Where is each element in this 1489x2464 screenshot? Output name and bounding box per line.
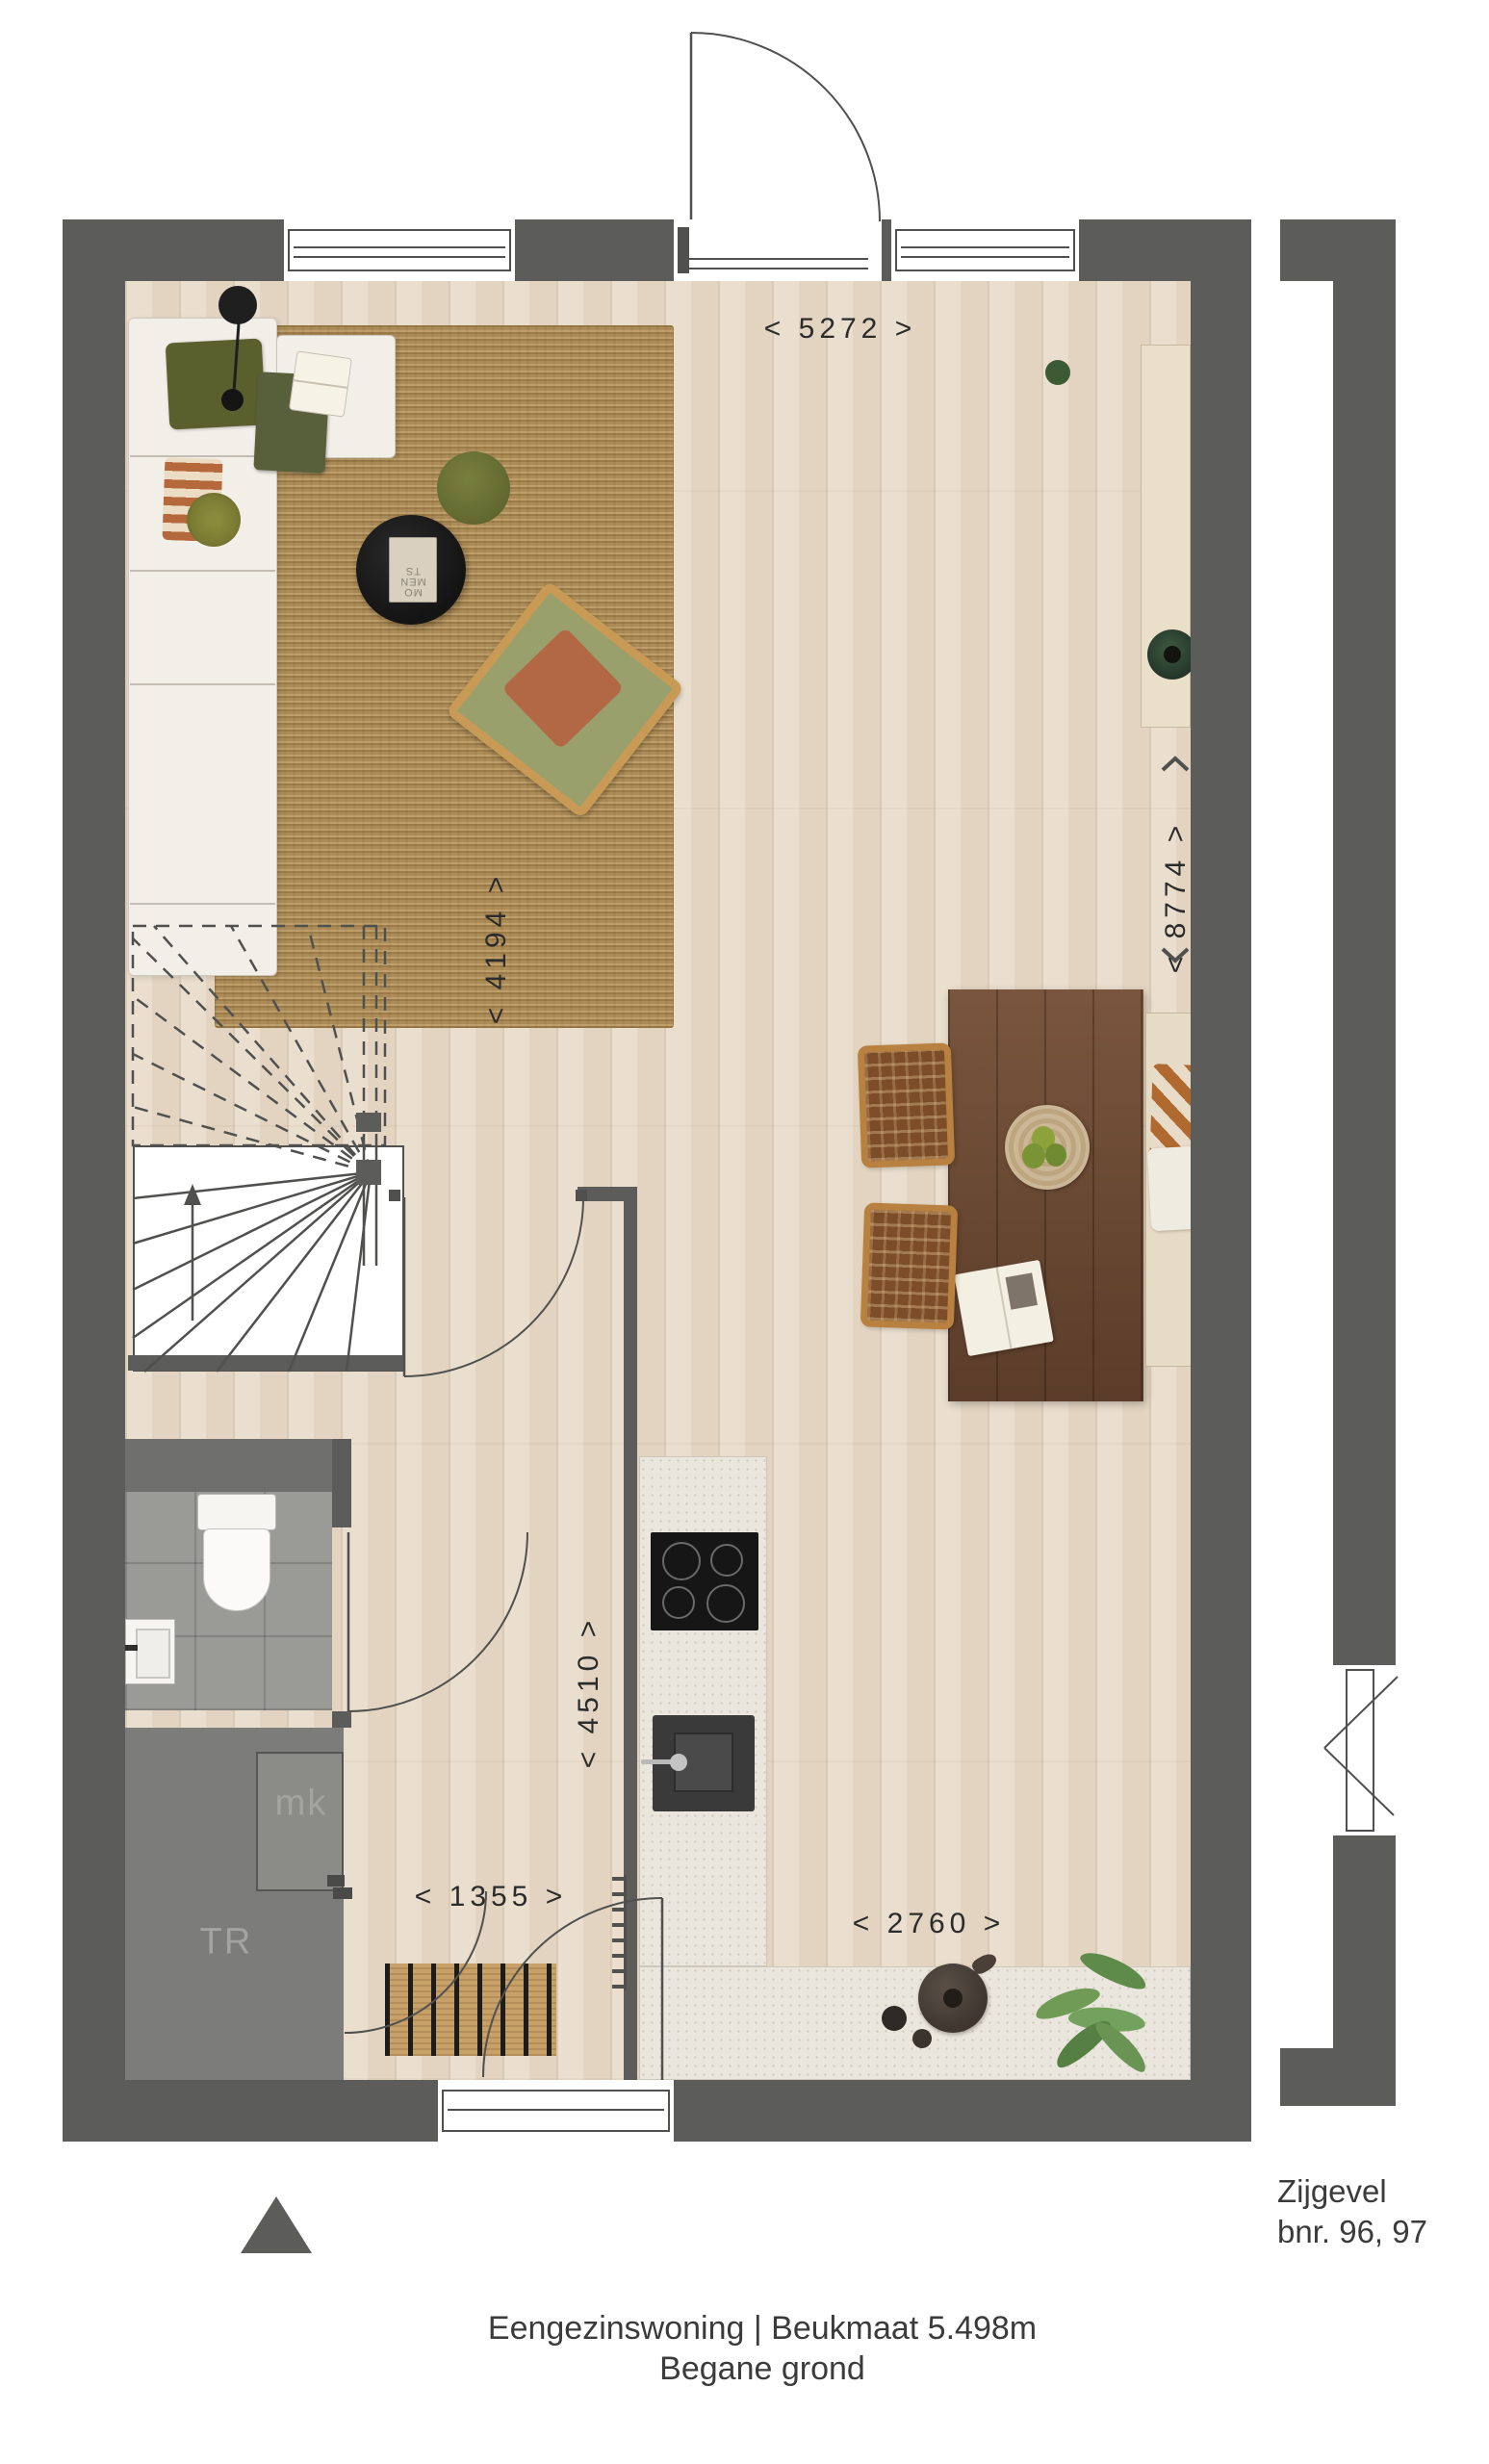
magazine (954, 1260, 1054, 1356)
toilet-top-wall (125, 1439, 332, 1492)
doormat (385, 1963, 556, 2056)
teapot (918, 1963, 988, 2033)
room-label-tr: TR (200, 1922, 253, 1963)
cup (882, 2006, 907, 2031)
round-cushion (187, 493, 241, 547)
wall-right (1191, 219, 1251, 2142)
pouf (437, 451, 510, 525)
door-hardware (327, 1875, 345, 1886)
toilet-wall-segment (332, 1711, 351, 1728)
back-door-arc (691, 33, 880, 221)
radiator-fin (612, 1892, 624, 1896)
zijgevel-bar-lower (1333, 1835, 1396, 2048)
sofa-seam (130, 683, 275, 685)
dim-kitchen-depth: < 4510 > (573, 1616, 605, 1768)
book-title: MO MEN TS (389, 565, 437, 597)
door-hardware (333, 1887, 352, 1899)
radiator-fin (612, 1923, 624, 1927)
wall-left (63, 219, 125, 2142)
radiator-fin (612, 1985, 624, 1989)
radiator-fin (612, 1908, 624, 1912)
window-top-right (891, 219, 1079, 281)
wall-lamp-icon (218, 286, 257, 324)
caption-title: Eengezinswoning | Beukmaat 5.498m (488, 2310, 1037, 2348)
green-cushion (166, 338, 267, 429)
staircase (133, 1145, 404, 1372)
dining-chair (858, 1042, 955, 1168)
coffee-table-book: MO MEN TS (389, 537, 437, 603)
dim-top-width: < 5272 > (764, 313, 916, 346)
room-label-mk: mk (275, 1784, 328, 1825)
caption-subtitle: Begane grond (659, 2350, 865, 2388)
sofa-seam (130, 903, 275, 905)
dim-hall-width: < 1355 > (415, 1881, 567, 1913)
kitchen-sink (653, 1715, 755, 1811)
back-door-opening (674, 219, 882, 281)
dim-total-depth: < 8774 > (1160, 821, 1193, 973)
front-door-assembly (438, 2080, 674, 2142)
stair-toilet-wall (128, 1355, 404, 1371)
fruit-bowl (1005, 1105, 1090, 1190)
lounge-chair-cushion (501, 628, 624, 750)
radiator-fin (612, 1938, 624, 1942)
radiator-fin (612, 1954, 624, 1958)
radiator (624, 1875, 627, 1990)
door-jamb (576, 1190, 587, 1201)
dining-chair (860, 1202, 958, 1329)
mullion (882, 219, 891, 281)
side-label-line1: Zijgevel (1277, 2173, 1387, 2210)
radiator-fin (612, 1877, 624, 1881)
side-label-line2: bnr. 96, 97 (1277, 2214, 1427, 2250)
door-jamb (389, 1190, 400, 1201)
window-top-left (284, 219, 515, 281)
washbasin (125, 1619, 175, 1684)
zijgevel-foot (1280, 2048, 1396, 2106)
sofa-seam (130, 570, 275, 572)
toilet-wall-segment (332, 1439, 351, 1527)
open-book (289, 350, 352, 417)
cooktop (651, 1532, 758, 1630)
plant-large (953, 279, 1165, 472)
entrance-arrow-icon (241, 2196, 312, 2253)
toilet-bowl (203, 1528, 270, 1611)
dim-kitchen-width: < 2760 > (853, 1908, 1005, 1940)
floorplan-canvas: MO MEN TS (0, 0, 1489, 2464)
cup (912, 2029, 932, 2048)
zijgevel-window (1321, 1665, 1405, 1835)
dim-living-depth: < 4194 > (480, 872, 513, 1024)
plant-fern (1030, 1944, 1155, 2079)
zijgevel-bar-upper (1333, 219, 1396, 1665)
radiator-fin (612, 1969, 624, 1973)
toilet-cistern (197, 1494, 276, 1530)
wall-lamp-shade (221, 389, 244, 411)
